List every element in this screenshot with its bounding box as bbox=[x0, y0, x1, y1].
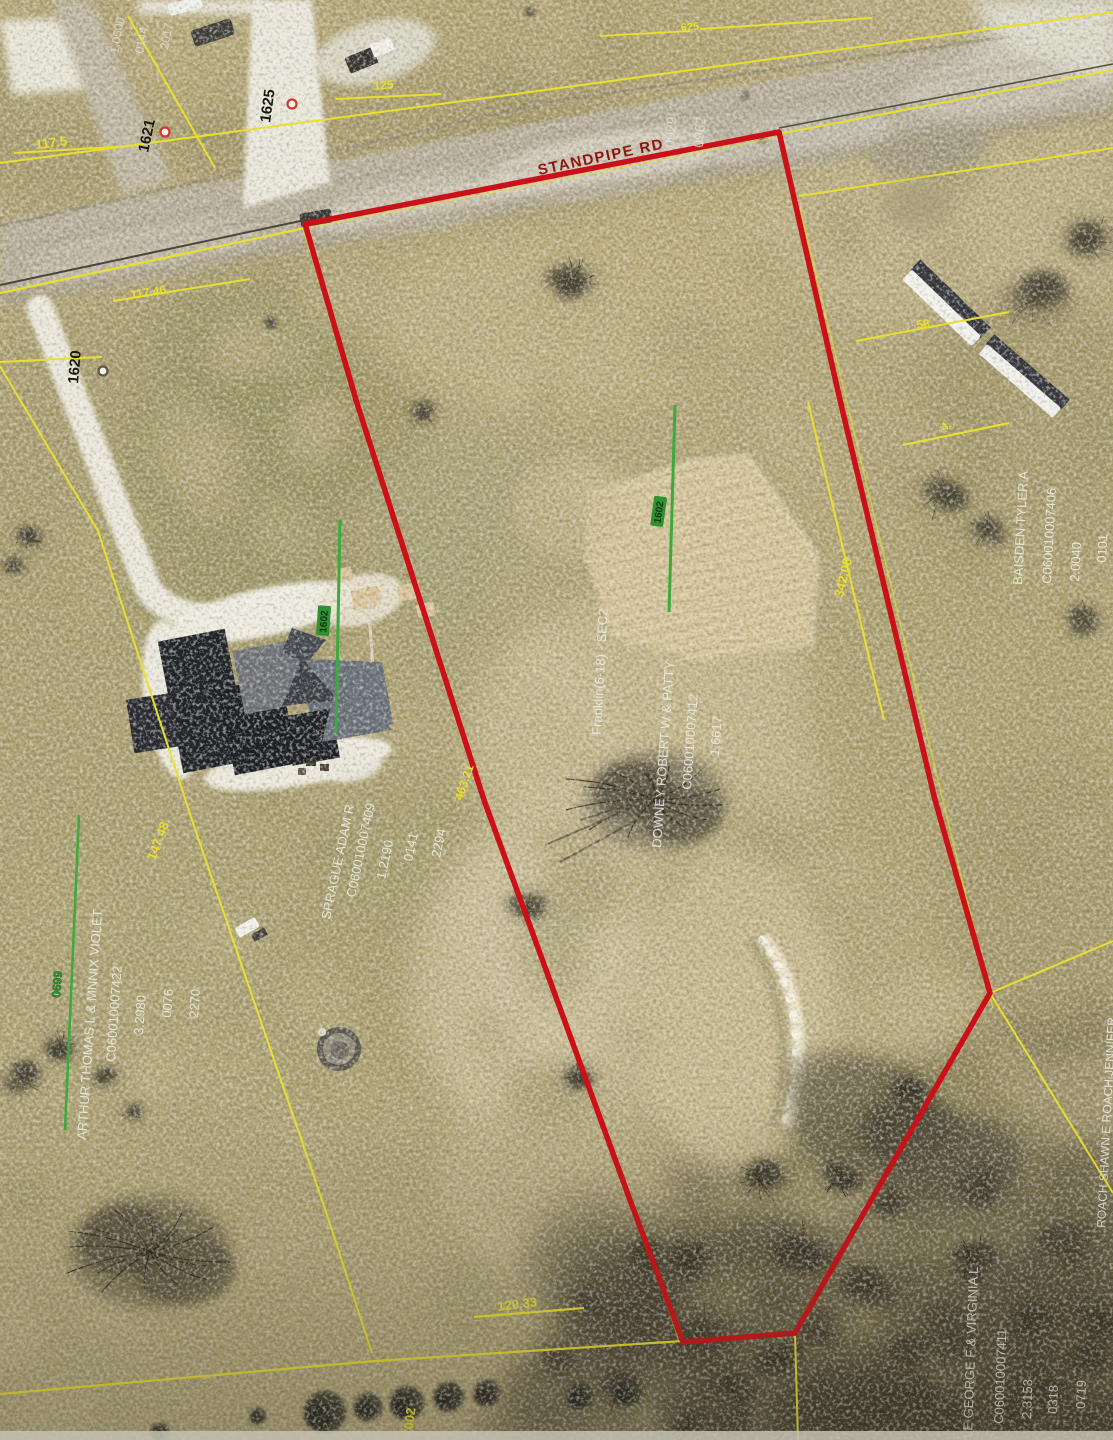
svg-text:0101: 0101 bbox=[1094, 533, 1110, 563]
svg-text:0962: 0962 bbox=[690, 116, 709, 149]
svg-text:2270: 2270 bbox=[186, 988, 203, 1018]
svg-text:0029: 0029 bbox=[661, 116, 680, 149]
svg-text:1.6617: 1.6617 bbox=[707, 715, 725, 756]
svg-text:0076: 0076 bbox=[159, 988, 176, 1018]
svg-text:1602: 1602 bbox=[318, 610, 331, 633]
svg-text:2.0040: 2.0040 bbox=[1067, 542, 1084, 582]
svg-text:625: 625 bbox=[680, 21, 699, 34]
svg-text:3.2980: 3.2980 bbox=[131, 994, 149, 1035]
svg-text:1620: 1620 bbox=[65, 350, 85, 385]
svg-text:0699: 0699 bbox=[49, 970, 65, 998]
svg-text:125: 125 bbox=[373, 77, 394, 93]
svg-text:58.: 58. bbox=[915, 316, 933, 332]
